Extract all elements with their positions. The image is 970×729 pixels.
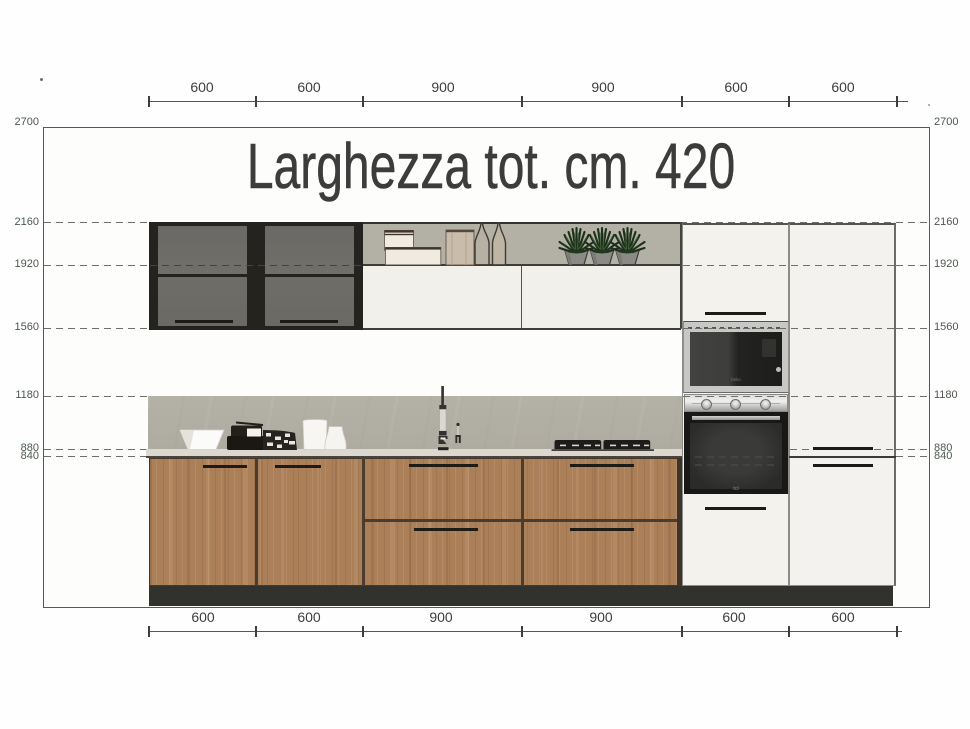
- svg-text:tcl: tcl: [733, 486, 739, 492]
- svg-text:beko: beko: [731, 377, 741, 382]
